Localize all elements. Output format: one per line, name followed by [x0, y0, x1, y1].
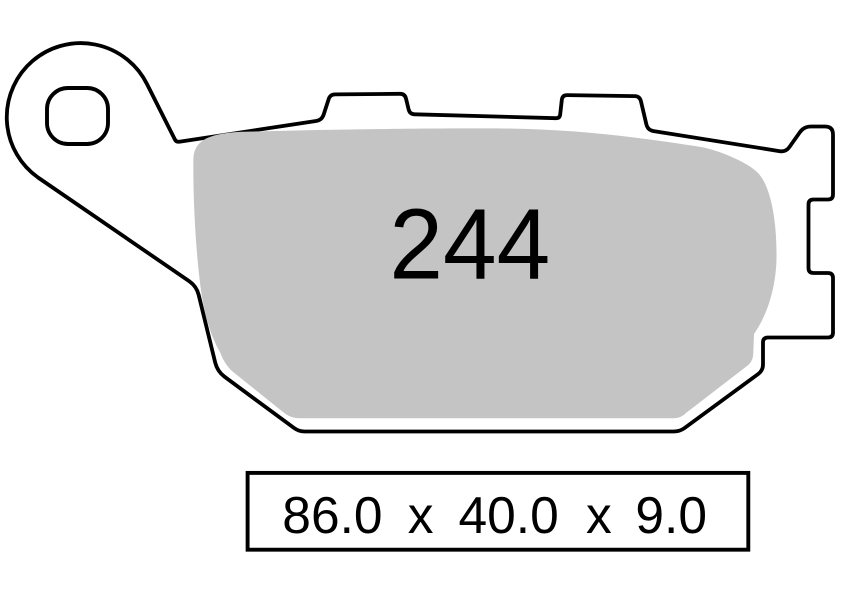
svg-text:x: x — [408, 486, 434, 544]
svg-text:x: x — [586, 486, 612, 544]
svg-text:244: 244 — [389, 189, 550, 301]
svg-text:86.0: 86.0 — [282, 486, 382, 544]
svg-text:9.0: 9.0 — [635, 486, 707, 544]
svg-text:40.0: 40.0 — [459, 486, 559, 544]
